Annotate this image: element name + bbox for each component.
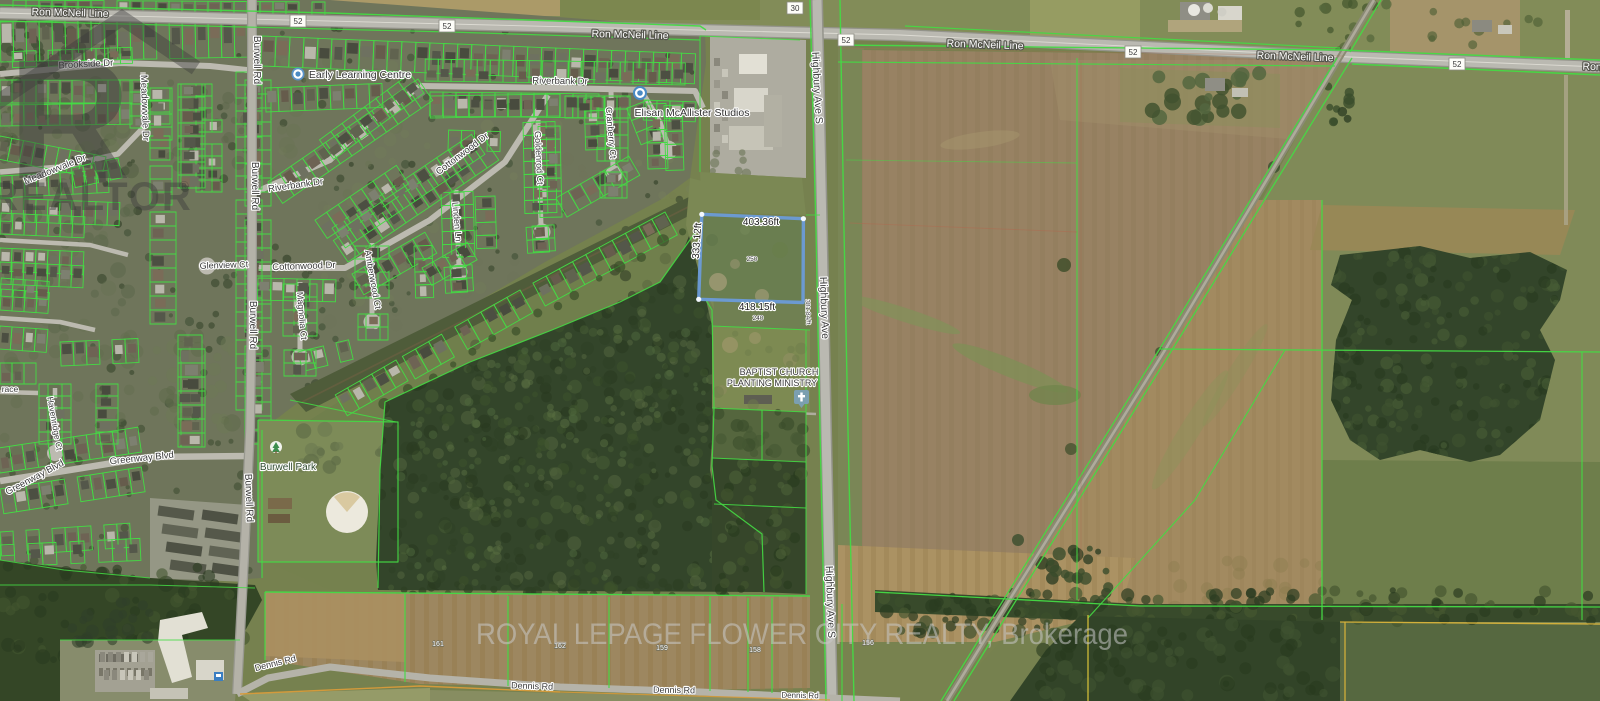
- svg-text:52: 52: [443, 22, 452, 31]
- svg-text:Meadowvale Dr: Meadowvale Dr: [138, 75, 151, 141]
- svg-text:Early Learning Centre: Early Learning Centre: [309, 69, 411, 81]
- svg-text:Burwell Rd: Burwell Rd: [247, 301, 258, 349]
- svg-text:Glenview Ct: Glenview Ct: [199, 259, 248, 271]
- svg-text:52: 52: [842, 36, 851, 45]
- svg-text:30: 30: [791, 4, 800, 13]
- svg-text:Ron McNeil Line: Ron McNeil Line: [31, 6, 108, 20]
- svg-text:Ron: Ron: [1582, 61, 1600, 74]
- svg-text:250: 250: [747, 256, 758, 263]
- svg-text:Dennis Rd: Dennis Rd: [511, 680, 553, 691]
- svg-text:ROYAL LEPAGE FLOWER CITY REALT: ROYAL LEPAGE FLOWER CITY REALTY, Brokera…: [476, 618, 1128, 651]
- svg-text:®: ®: [179, 178, 189, 193]
- svg-text:381:84/ft: 381:84/ft: [804, 299, 812, 325]
- svg-text:race: race: [2, 384, 19, 394]
- svg-text:161: 161: [432, 641, 444, 648]
- svg-text:418.15ft: 418.15ft: [739, 302, 775, 313]
- svg-text:Burwell Rd: Burwell Rd: [251, 36, 262, 84]
- svg-text:BAPTIST CHURCH: BAPTIST CHURCH: [740, 367, 819, 377]
- svg-text:Dennis Rd: Dennis Rd: [653, 685, 695, 696]
- svg-text:Ron McNeil Line: Ron McNeil Line: [591, 28, 668, 42]
- svg-text:Elisan McAllister Studios: Elisan McAllister Studios: [635, 107, 750, 119]
- svg-text:PLANTING MINISTRY: PLANTING MINISTRY: [727, 378, 817, 388]
- svg-text:Burwell Rd: Burwell Rd: [242, 474, 255, 523]
- svg-text:Dennis Rd: Dennis Rd: [781, 691, 819, 701]
- svg-text:Burwell Park: Burwell Park: [260, 462, 317, 473]
- svg-text:403.36ft: 403.36ft: [743, 217, 779, 228]
- svg-text:52: 52: [1453, 60, 1462, 69]
- svg-text:Burwell Rd: Burwell Rd: [249, 162, 260, 210]
- svg-text:Riverbank Dr: Riverbank Dr: [532, 76, 588, 88]
- svg-text:Highbury Ave: Highbury Ave: [817, 277, 831, 340]
- svg-text:52: 52: [294, 17, 303, 26]
- svg-text:52: 52: [1129, 48, 1138, 57]
- svg-text:Cottonwood Dr: Cottonwood Dr: [272, 260, 336, 273]
- svg-text:REALTOR: REALTOR: [0, 175, 193, 219]
- svg-text:240: 240: [753, 315, 764, 322]
